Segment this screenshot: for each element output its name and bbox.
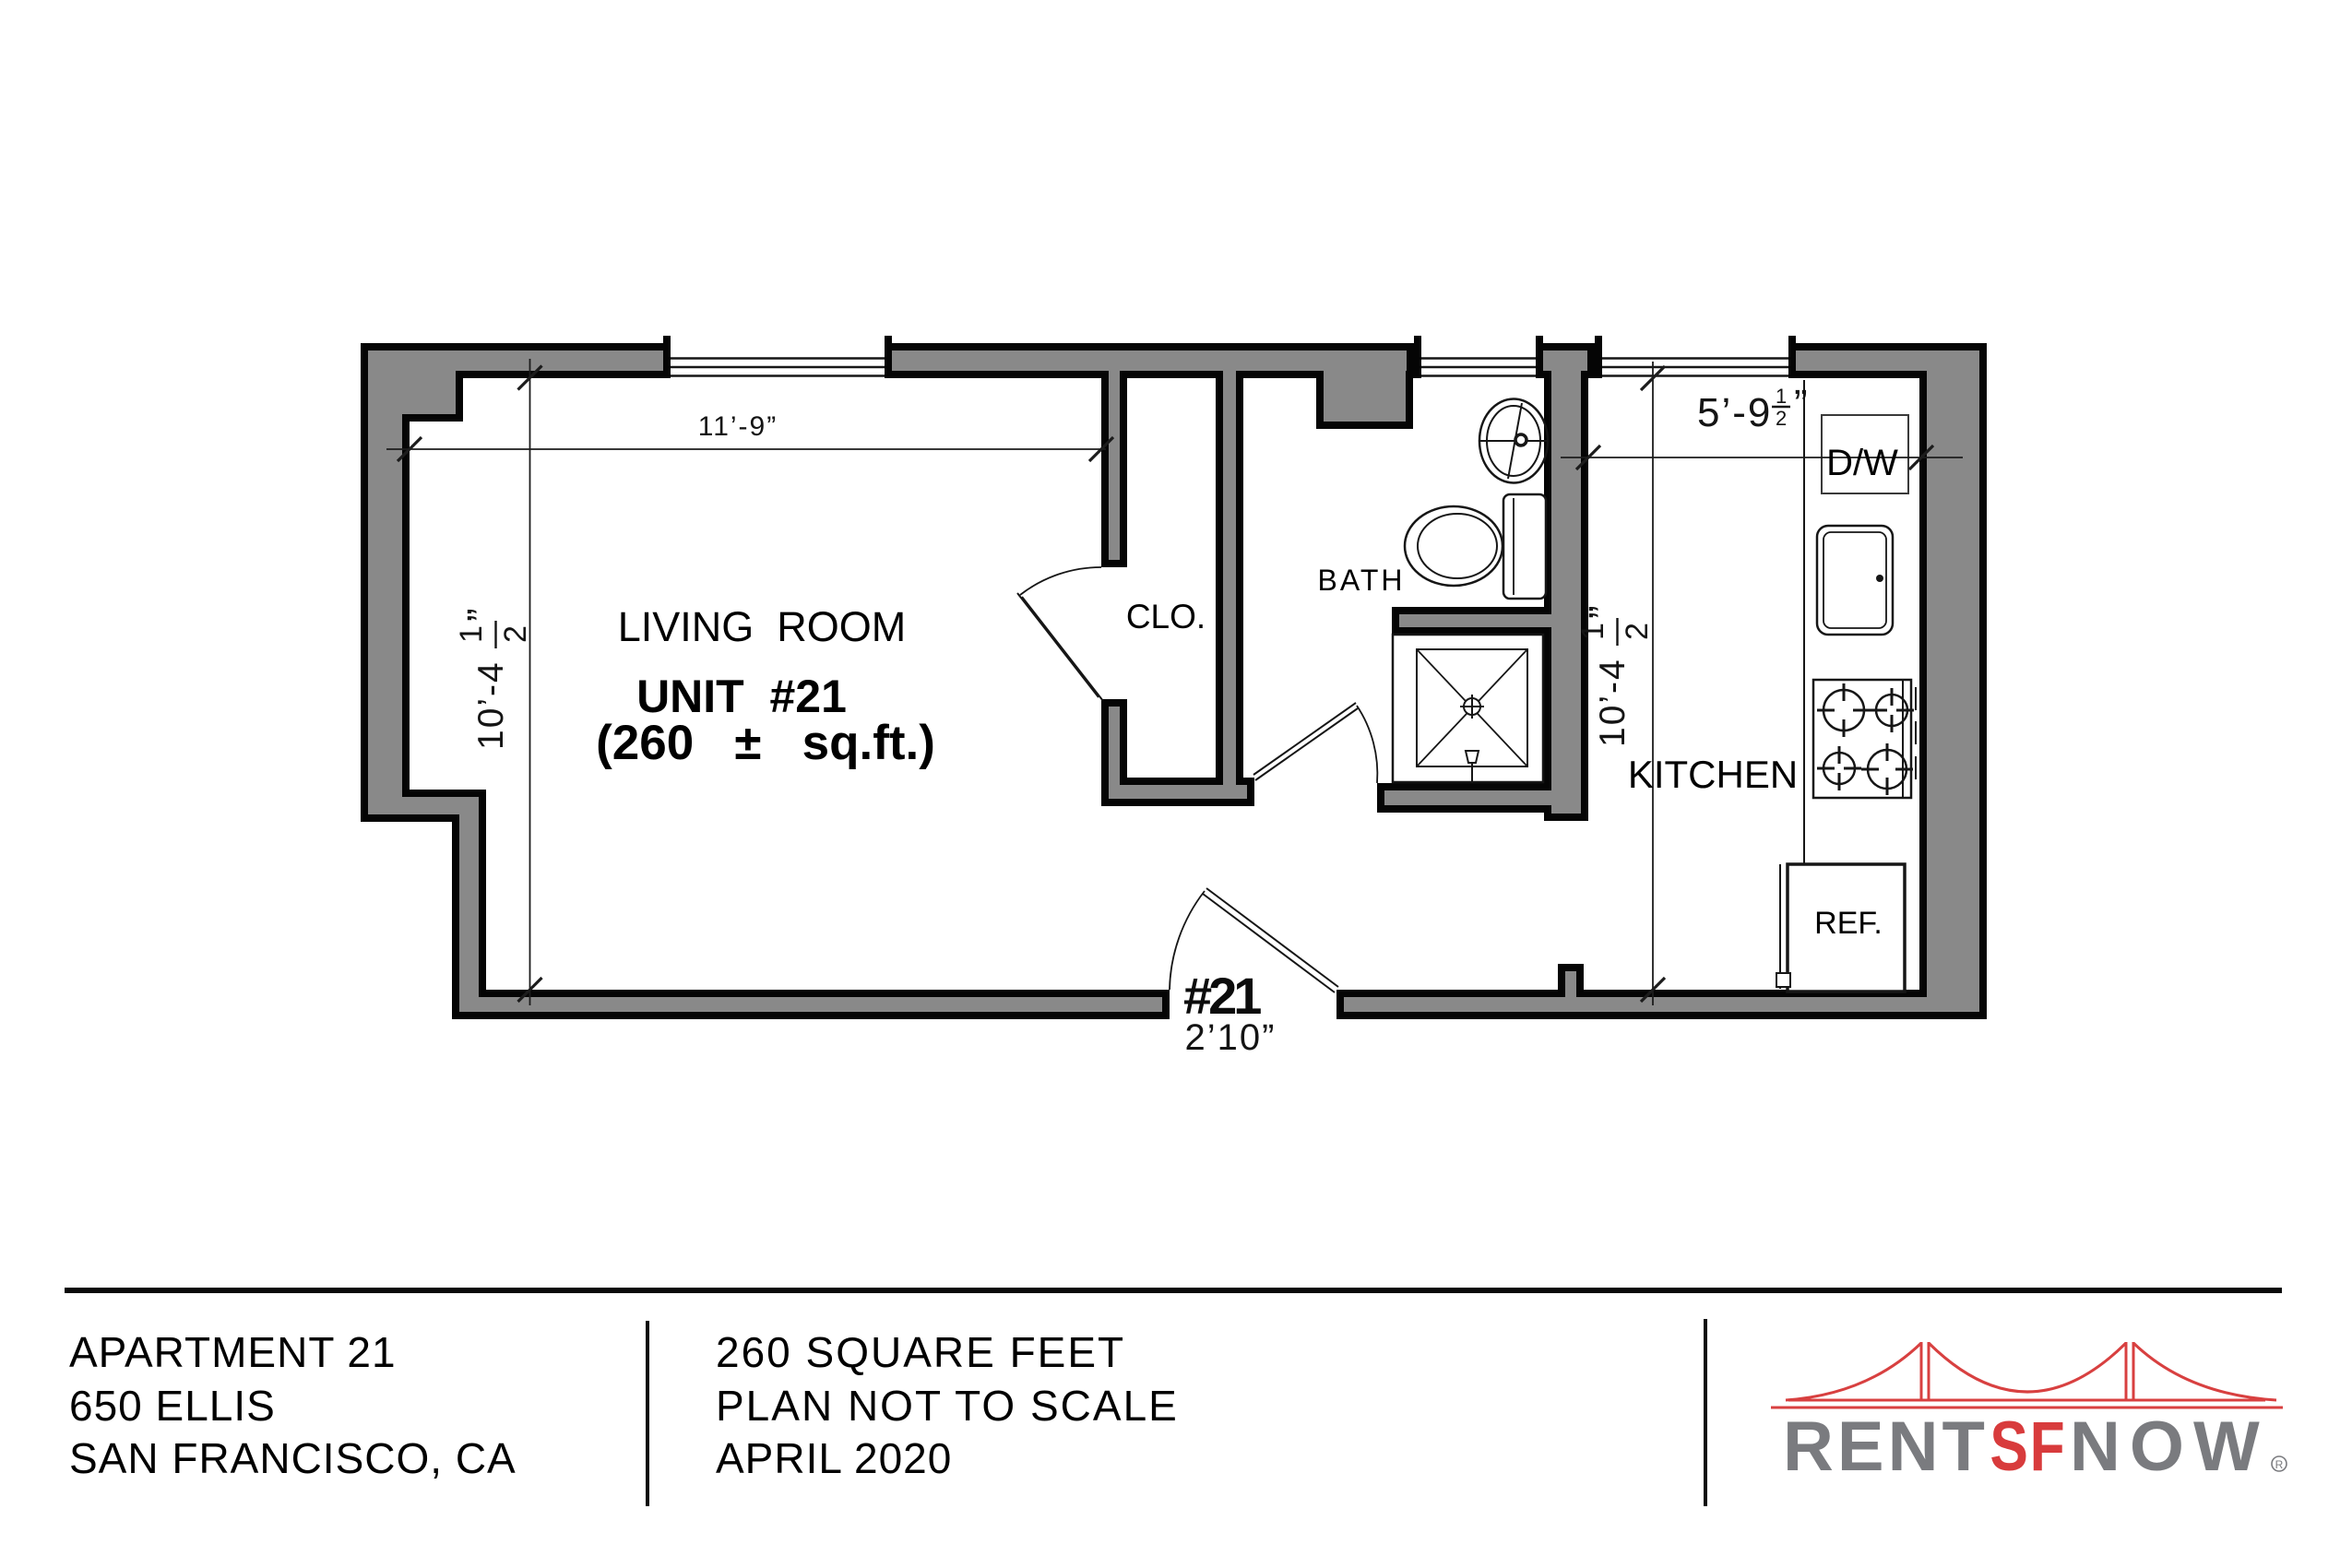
svg-text:650 ELLIS: 650 ELLIS [69, 1382, 276, 1430]
svg-text:SAN FRANCISCO, CA: SAN FRANCISCO, CA [69, 1434, 517, 1482]
svg-text:SF: SF [1990, 1407, 2066, 1485]
svg-text:R: R [2275, 1458, 2284, 1471]
svg-text:PLAN NOT TO SCALE: PLAN NOT TO SCALE [716, 1382, 1179, 1430]
svg-text:260 SQUARE FEET: 260 SQUARE FEET [716, 1328, 1125, 1376]
svg-text:10’-4: 10’-4 [1593, 658, 1633, 747]
svg-text:1: 1 [1776, 385, 1787, 408]
svg-text:2: 2 [1620, 623, 1655, 640]
svg-text:LIVING ROOM: LIVING ROOM [618, 603, 907, 650]
svg-text:#21: #21 [1183, 967, 1261, 1025]
svg-text:RENT: RENT [1783, 1408, 1989, 1486]
svg-text:1: 1 [454, 625, 489, 643]
svg-text:UNIT #21: UNIT #21 [636, 671, 847, 722]
svg-text:BATH: BATH [1318, 564, 1406, 597]
svg-text:5’-9: 5’-9 [1697, 390, 1772, 435]
svg-text:(260 ± sq.ft.): (260 ± sq.ft.) [596, 716, 935, 770]
svg-text:10’-4: 10’-4 [471, 660, 511, 750]
svg-text:NOW: NOW [2070, 1408, 2269, 1486]
svg-text:”: ” [1794, 382, 1808, 427]
svg-text:REF.: REF. [1814, 906, 1883, 941]
svg-text:11’-9”: 11’-9” [698, 411, 778, 442]
svg-text:2’10”: 2’10” [1185, 1017, 1277, 1058]
svg-text:CLO.: CLO. [1126, 598, 1206, 636]
svg-text:2: 2 [1776, 407, 1787, 430]
svg-text:”: ” [1581, 605, 1626, 619]
svg-text:D/W: D/W [1826, 443, 1898, 483]
svg-text:APARTMENT 21: APARTMENT 21 [69, 1328, 397, 1376]
svg-text:2: 2 [498, 625, 533, 643]
svg-text:APRIL 2020: APRIL 2020 [716, 1434, 952, 1482]
svg-text:1: 1 [1575, 623, 1610, 640]
svg-text:”: ” [459, 608, 505, 622]
svg-text:KITCHEN: KITCHEN [1628, 753, 1798, 796]
